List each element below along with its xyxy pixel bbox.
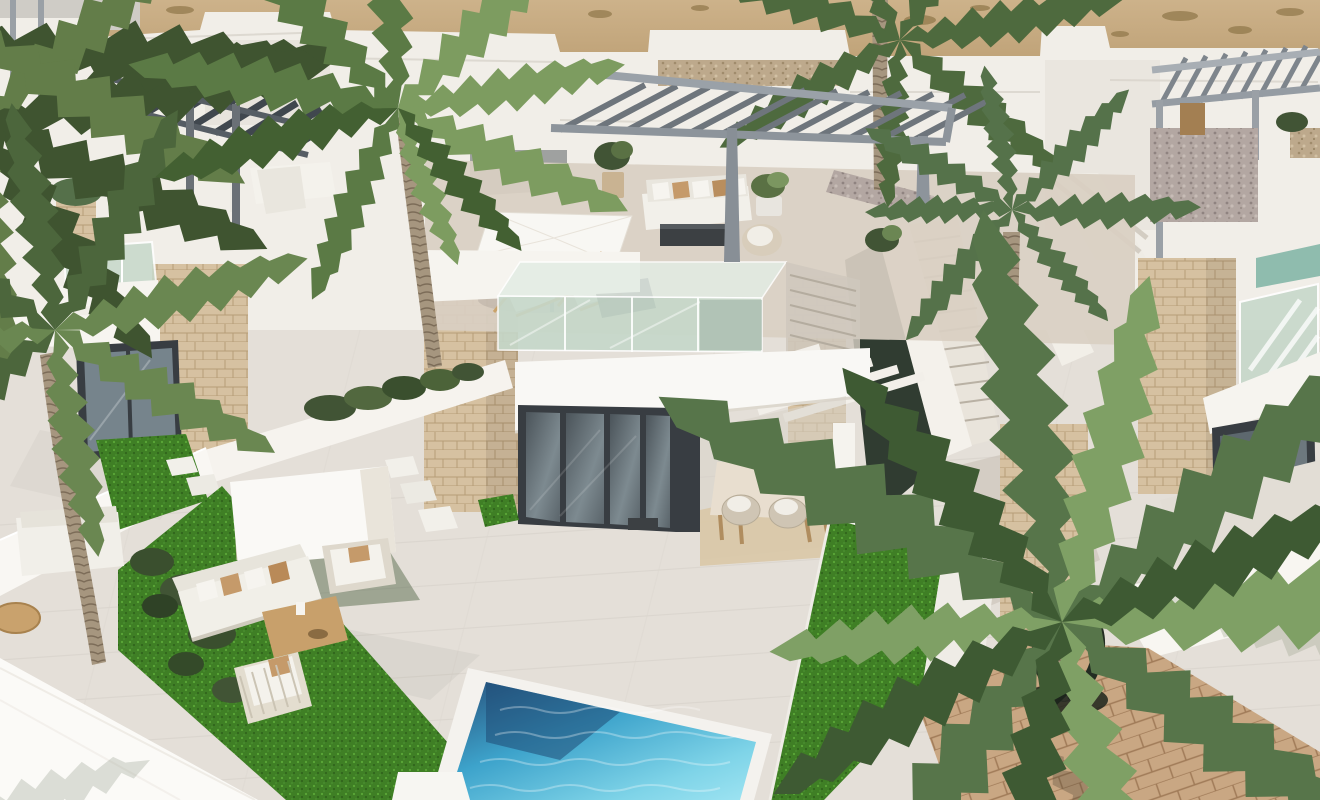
wicker-armchair-cushion [747,226,773,246]
wood-slat-box [1180,103,1205,135]
render-canvas [0,0,1320,800]
stepping-stone [385,456,419,478]
sliding-glass-doors [518,405,676,532]
court-plant [1276,112,1308,132]
roof-coffee-table-top [660,224,734,229]
gravel-roof-strip-2 [1290,128,1320,158]
white-pool-furniture [392,772,470,800]
stairwell-glass-balustrade [498,262,786,352]
garden-daybed [322,538,396,594]
villa-aerial-render [0,0,1320,800]
doormat [628,518,658,530]
